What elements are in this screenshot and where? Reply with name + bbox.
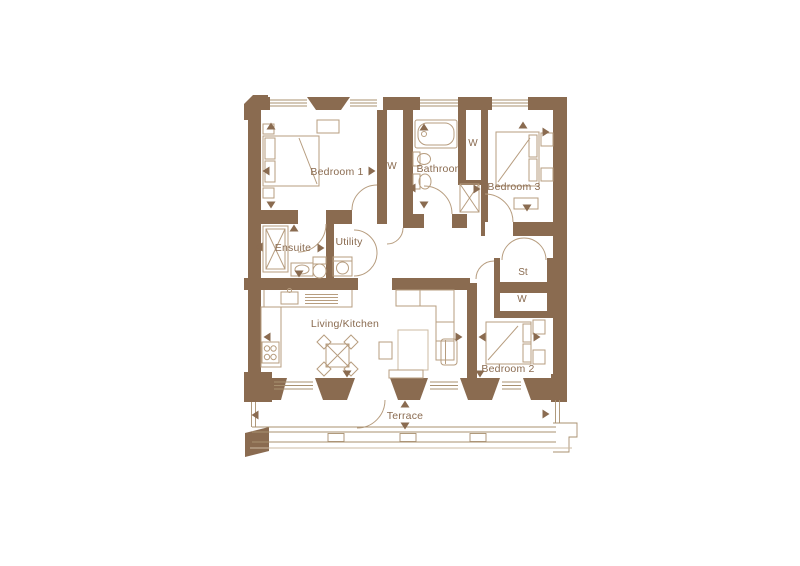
bedroom2-furniture [486,320,545,364]
floorplan-svg: Bedroom 1 W Bathroom W Bedroom 3 Ensuite… [0,0,800,566]
wardrobe1-label: W [387,161,397,172]
utility-label: Utility [335,236,363,248]
terrace-railing [250,400,577,452]
dining-set [317,335,358,376]
terrace-label: Terrace [387,410,423,422]
wardrobe2-label: W [468,138,478,149]
bathroom-label: Bathroom [416,163,463,175]
living-kitchen-label: Living/Kitchen [311,318,379,330]
bedroom2-label: Bedroom 2 [481,363,534,375]
ensuite-label: Ensuite [275,242,311,254]
utility-washer [333,257,352,276]
bedroom1-label: Bedroom 1 [310,166,363,178]
store-label: St [518,267,528,278]
bedroom3-furniture [496,132,553,209]
living-furniture [379,290,457,378]
floorplan-page: Bedroom 1 W Bathroom W Bedroom 3 Ensuite… [0,0,800,566]
wardrobe3-label: W [517,294,527,305]
bedroom1-furniture [263,120,339,198]
bedroom3-label: Bedroom 3 [487,181,540,193]
